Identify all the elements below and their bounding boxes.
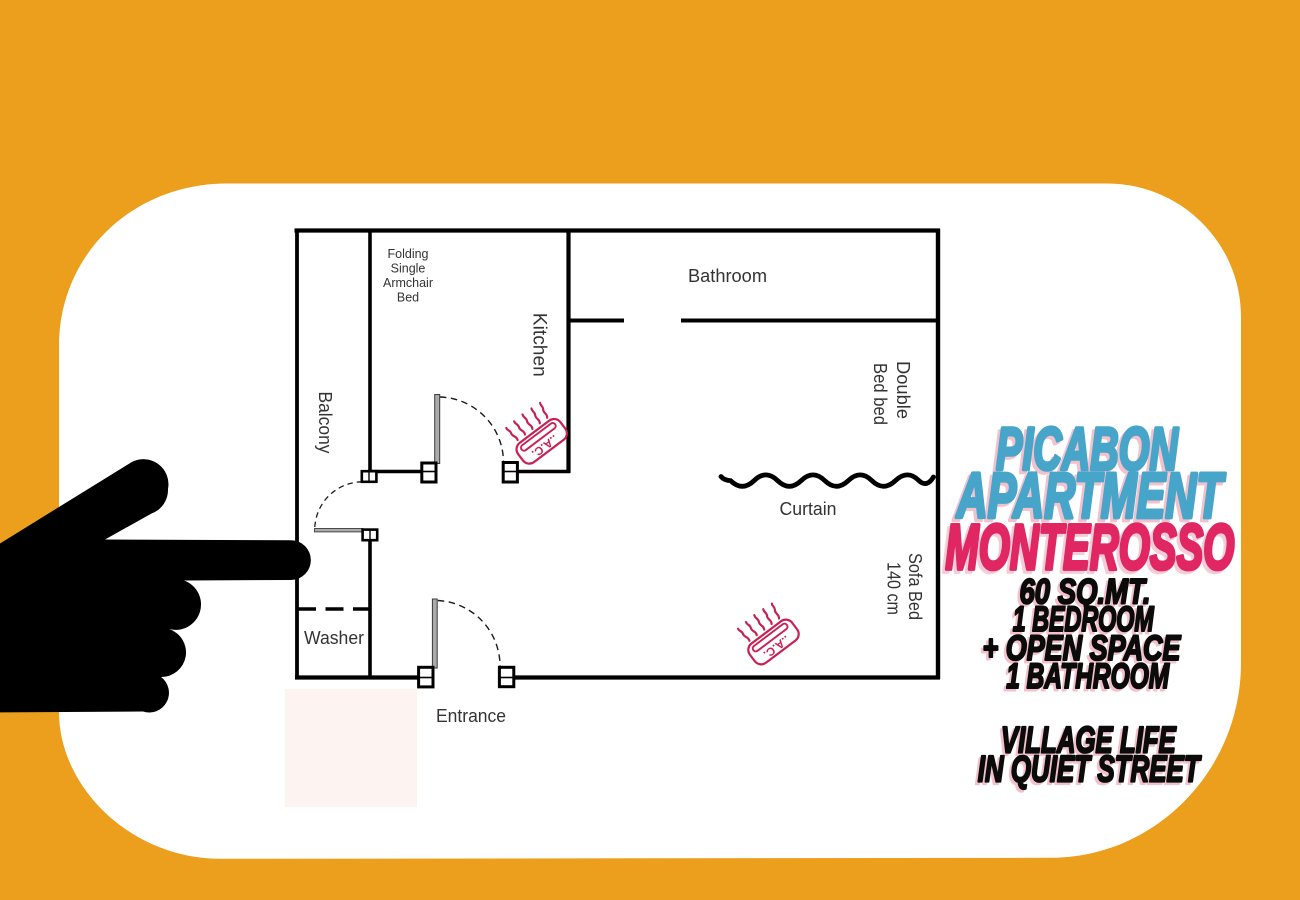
svg-text:Curtain: Curtain <box>780 499 837 519</box>
svg-text:Single: Single <box>391 262 426 276</box>
svg-text:1 BATHROOM: 1 BATHROOM <box>1006 657 1170 696</box>
svg-text:IN QUIET STREET: IN QUIET STREET <box>978 749 1202 790</box>
svg-text:140 cm: 140 cm <box>884 562 904 615</box>
svg-text:Entrance: Entrance <box>436 706 506 726</box>
svg-text:Folding: Folding <box>388 247 429 261</box>
svg-text:Bathroom: Bathroom <box>688 266 767 286</box>
svg-text:Armchair: Armchair <box>383 276 433 290</box>
svg-text:Washer: Washer <box>304 628 364 648</box>
svg-text:Bed bed: Bed bed <box>870 363 890 425</box>
svg-text:Double: Double <box>893 361 913 419</box>
svg-text:Bed: Bed <box>397 291 419 305</box>
svg-text:Sofa Bed: Sofa Bed <box>905 553 925 620</box>
svg-text:Balcony: Balcony <box>315 392 336 455</box>
svg-text:Kitchen: Kitchen <box>529 313 551 377</box>
